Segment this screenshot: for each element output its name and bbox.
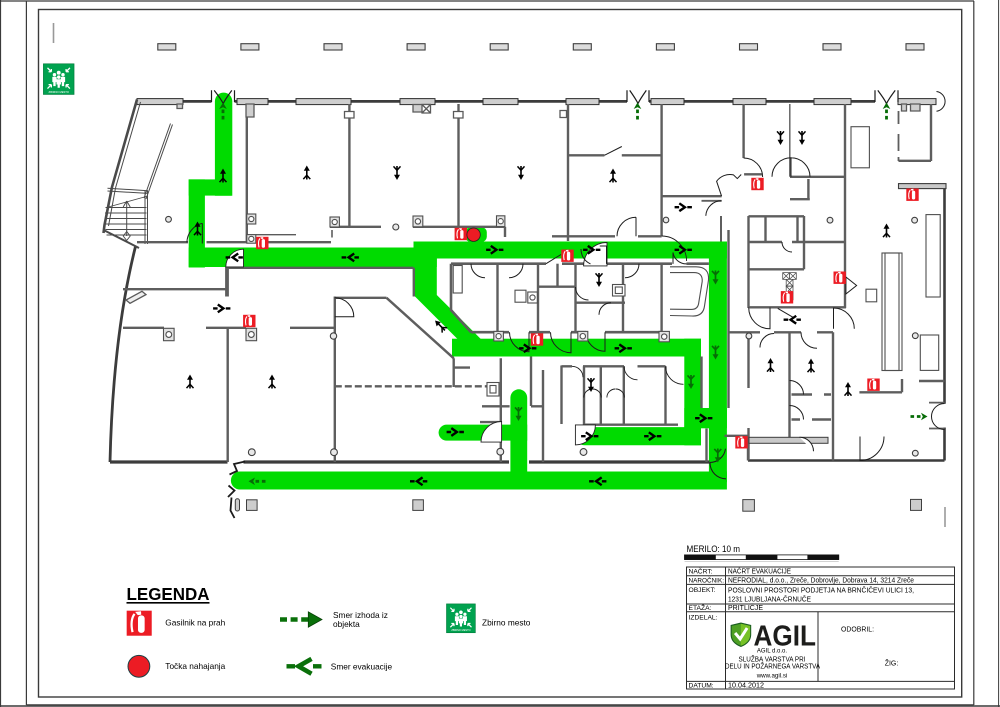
svg-text:NAČRT EVAKUACIJE: NAČRT EVAKUACIJE bbox=[728, 567, 791, 576]
svg-text:Zbirno mesto: Zbirno mesto bbox=[482, 617, 531, 627]
svg-text:IZDELAL:: IZDELAL: bbox=[689, 614, 718, 621]
svg-text:ETAŽA:: ETAŽA: bbox=[689, 603, 712, 612]
svg-text:NEFRODIAL, d.o.o., Zreče, Dobr: NEFRODIAL, d.o.o., Zreče, Dobrovlje, Dob… bbox=[728, 577, 914, 584]
svg-text:ŽIG:: ŽIG: bbox=[885, 659, 899, 668]
svg-text:1231 LJUBLJANA-ČRNUČE: 1231 LJUBLJANA-ČRNUČE bbox=[728, 595, 811, 604]
svg-text:DELU IN POŽARNEGA VARSTVA: DELU IN POŽARNEGA VARSTVA bbox=[725, 662, 820, 671]
svg-text:ZBIRNO MESTO: ZBIRNO MESTO bbox=[451, 629, 470, 632]
svg-text:www.agil.si: www.agil.si bbox=[756, 673, 788, 680]
svg-text:ZBIRNO MESTO: ZBIRNO MESTO bbox=[49, 90, 69, 94]
svg-text:NAČRT:: NAČRT: bbox=[689, 567, 713, 576]
svg-text:MERILO: 10 m: MERILO: 10 m bbox=[687, 544, 741, 554]
svg-text:Smer evakuacije: Smer evakuacije bbox=[331, 661, 393, 671]
svg-text:PRITLIČJE: PRITLIČJE bbox=[728, 603, 763, 612]
svg-text:OBJEKT:: OBJEKT: bbox=[689, 587, 716, 594]
svg-text:LEGENDA: LEGENDA bbox=[127, 584, 210, 604]
svg-text:AGIL d.o.o.: AGIL d.o.o. bbox=[757, 648, 787, 654]
svg-text:objekta: objekta bbox=[333, 619, 360, 629]
svg-text:DATUM:: DATUM: bbox=[689, 682, 714, 689]
svg-text:ODOBRIL:: ODOBRIL: bbox=[841, 627, 874, 634]
svg-text:NAROČNIK:: NAROČNIK: bbox=[689, 575, 725, 584]
svg-text:10.04.2012: 10.04.2012 bbox=[728, 682, 764, 689]
svg-text:Točka nahajanja: Točka nahajanja bbox=[165, 661, 225, 671]
svg-text:POSLOVNI PROSTORI PODJETJA NA: POSLOVNI PROSTORI PODJETJA NA BRNČIČEVI … bbox=[728, 585, 914, 594]
svg-text:Gasilnik na prah: Gasilnik na prah bbox=[165, 617, 225, 627]
